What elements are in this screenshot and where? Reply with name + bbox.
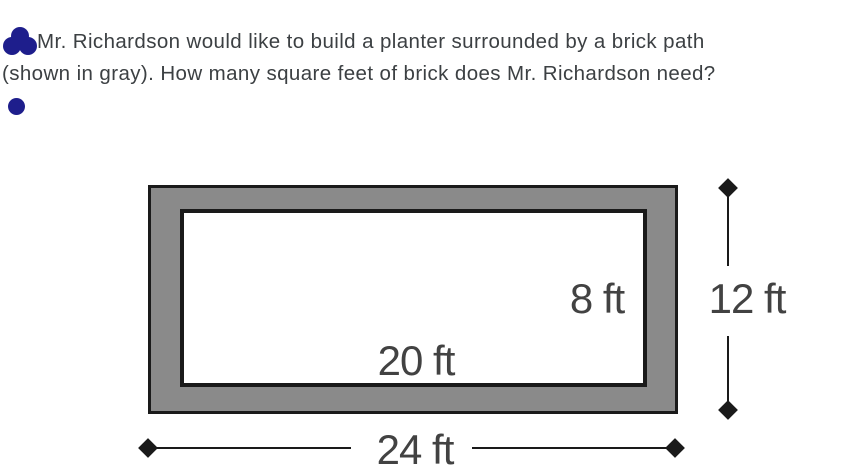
- dimension-diamond-right: [665, 438, 685, 458]
- question-text-line1: Mr. Richardson would like to build a pla…: [37, 29, 705, 55]
- outer-width-label: 24 ft: [377, 426, 454, 474]
- clover-icon: [3, 26, 37, 56]
- dimension-diamond-bottom: [718, 400, 738, 420]
- inner-width-label: 20 ft: [378, 337, 455, 385]
- question-text-line2: (shown in gray). How many square feet of…: [2, 61, 716, 87]
- inner-height-label: 8 ft: [570, 275, 624, 323]
- vertical-dimension-line-lower: [727, 336, 729, 404]
- dimension-diamond-left: [138, 438, 158, 458]
- worksheet-page: Mr. Richardson would like to build a pla…: [0, 0, 844, 474]
- horizontal-dimension-line-left: [156, 447, 351, 449]
- vertical-dimension-line-upper: [727, 196, 729, 266]
- dimension-diamond-top: [718, 178, 738, 198]
- outer-height-label: 12 ft: [709, 275, 786, 323]
- bullet-dot-icon: [8, 98, 25, 115]
- horizontal-dimension-line-right: [472, 447, 668, 449]
